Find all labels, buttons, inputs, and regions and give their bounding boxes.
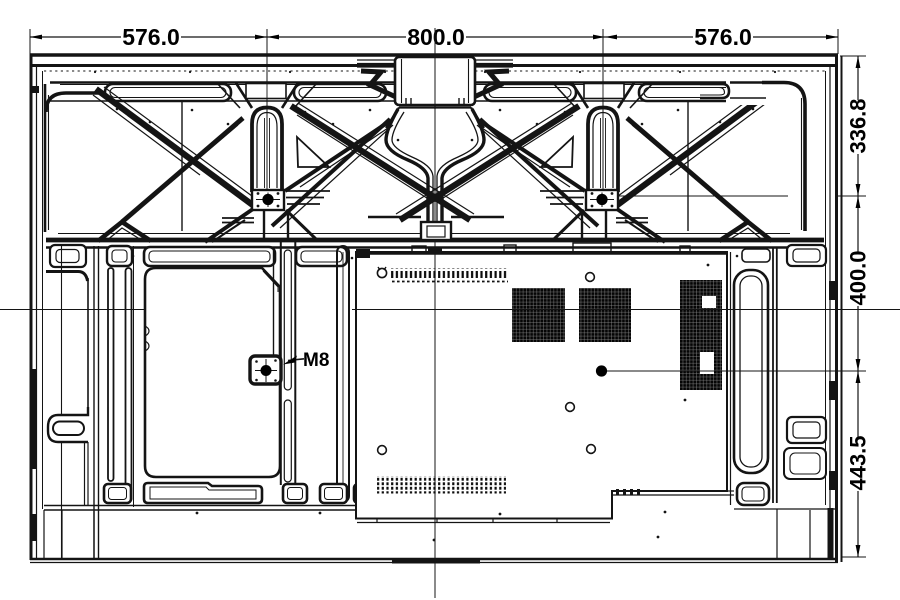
svg-text:576.0: 576.0 bbox=[694, 24, 752, 50]
svg-text:M8: M8 bbox=[303, 350, 329, 371]
svg-text:443.5: 443.5 bbox=[846, 435, 871, 490]
svg-text:576.0: 576.0 bbox=[122, 24, 180, 50]
svg-text:800.0: 800.0 bbox=[407, 24, 465, 50]
svg-text:400.0: 400.0 bbox=[846, 250, 871, 305]
svg-text:336.8: 336.8 bbox=[846, 98, 871, 153]
